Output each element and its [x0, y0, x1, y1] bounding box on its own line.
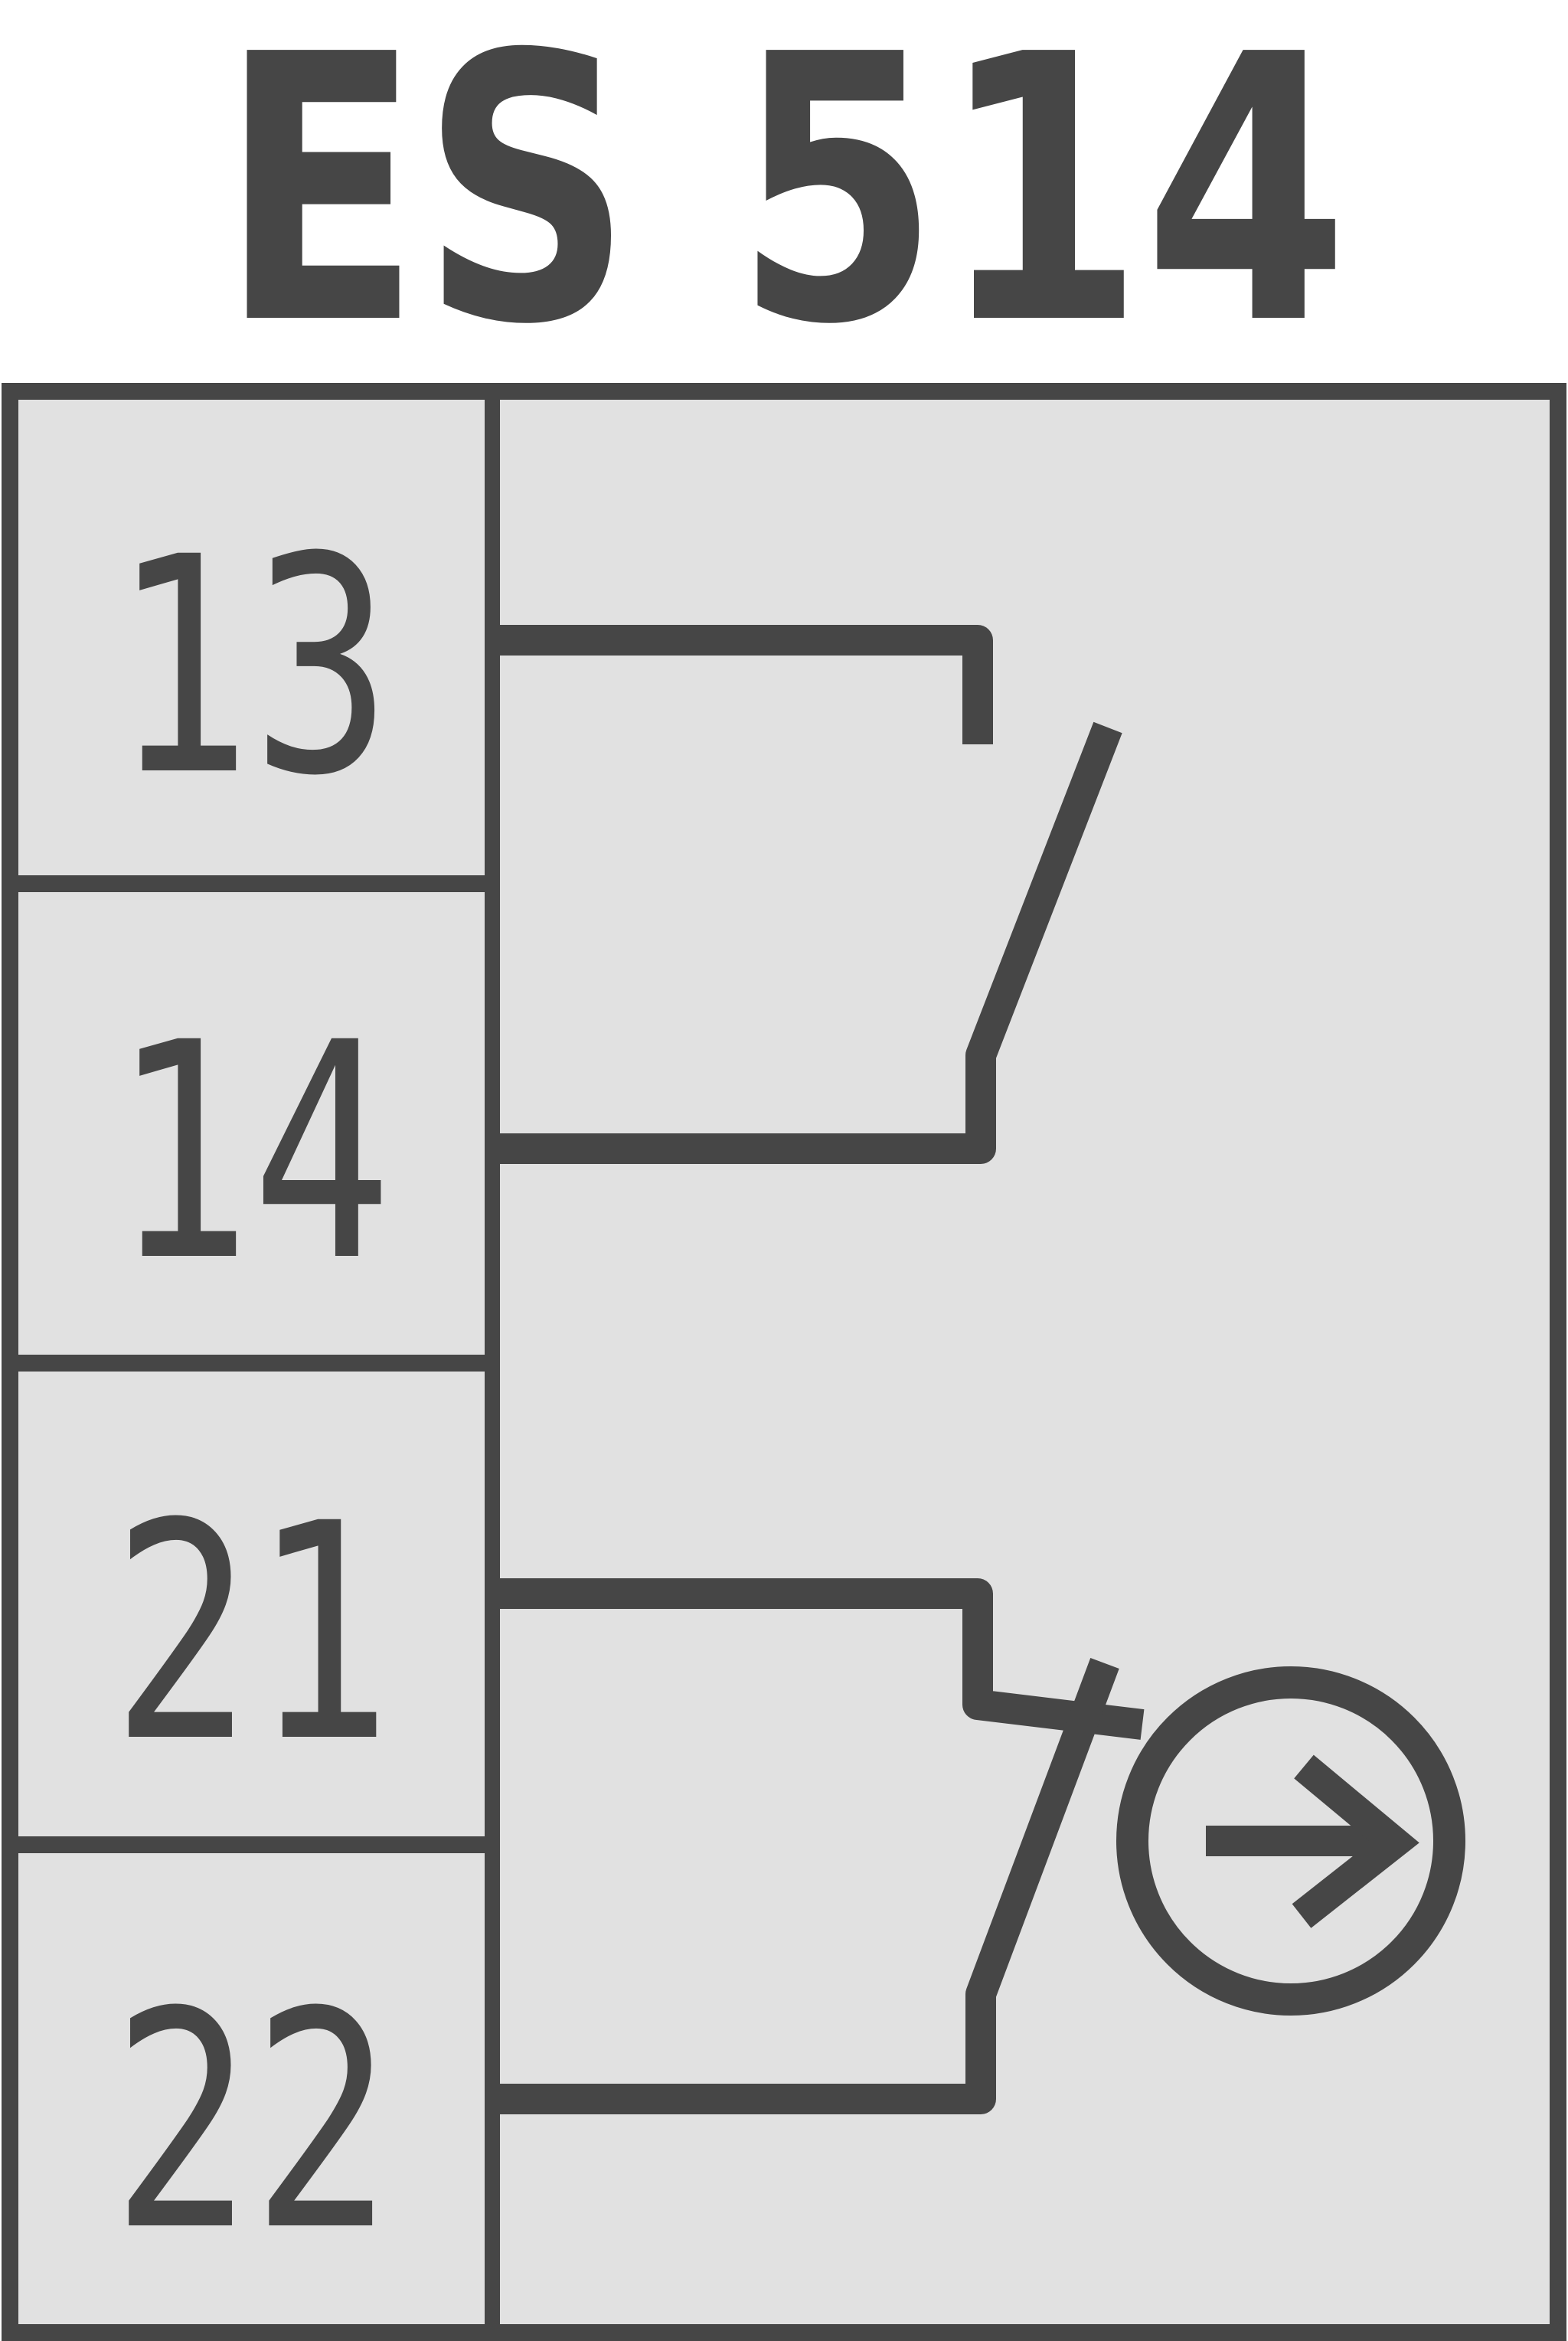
nc-contact-blade-22	[492, 1663, 1105, 2099]
contact-diagram-graphics	[0, 0, 1568, 2341]
nc-contact-fixed-lead-21	[492, 1594, 1142, 1725]
no-contact-blade-14	[492, 727, 1108, 1149]
datasheet-contact-diagram: ES 514 13 14 21 22	[0, 0, 1568, 2341]
no-contact-fixed-lead-13	[492, 640, 978, 744]
